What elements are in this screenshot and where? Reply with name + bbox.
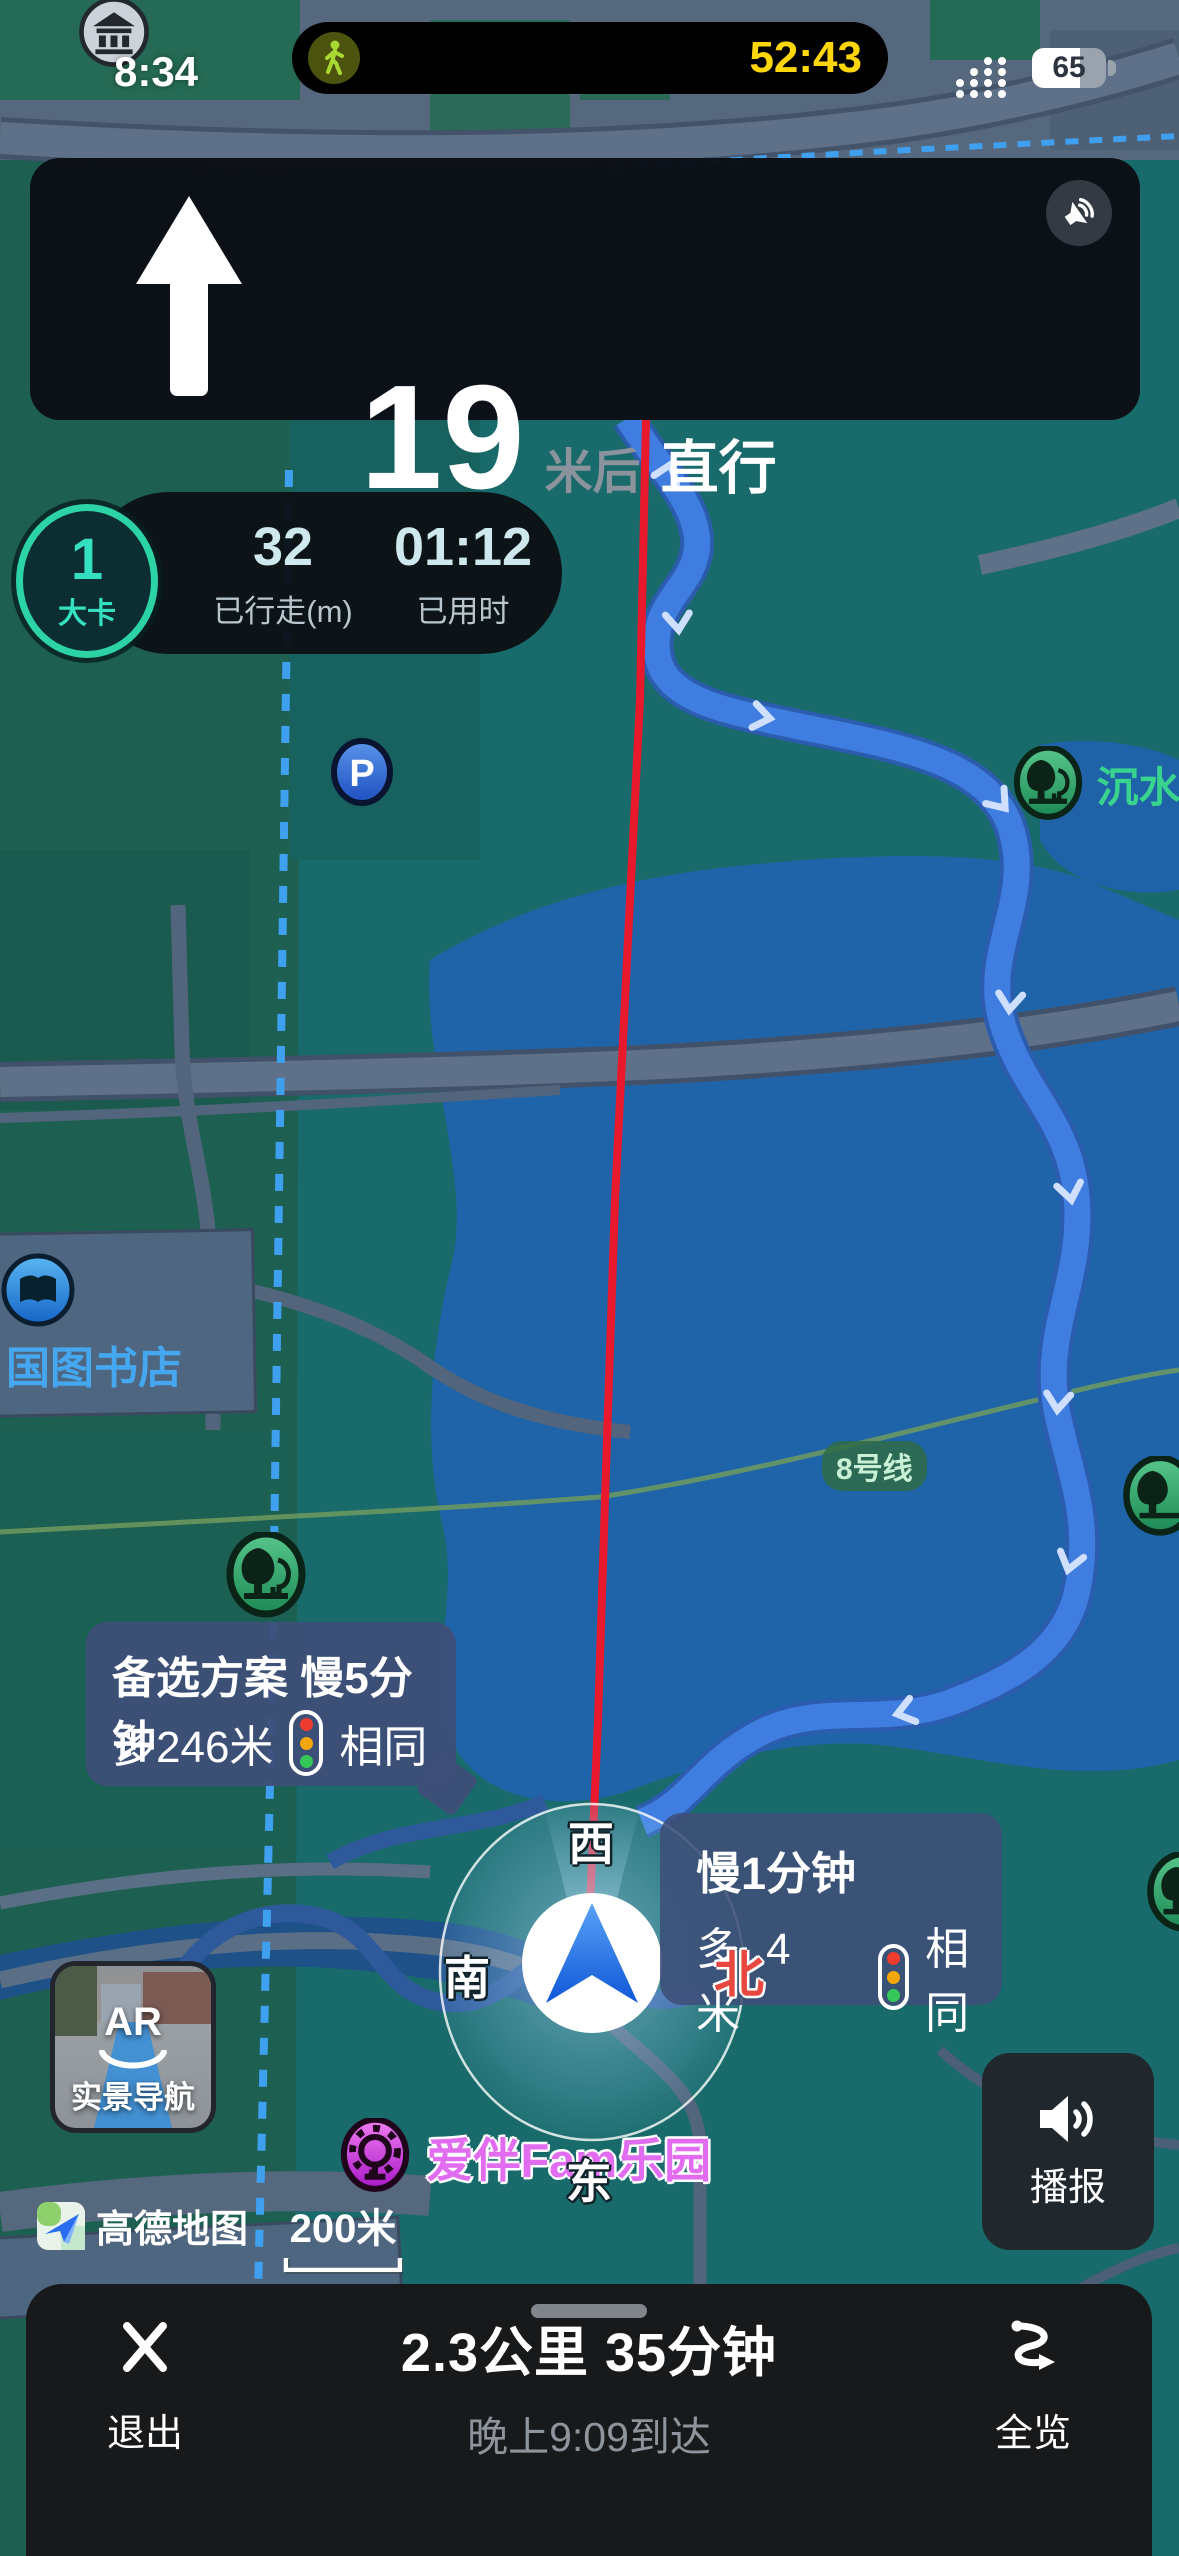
ar-badge: AR — [55, 2000, 211, 2045]
tree-icon[interactable] — [1146, 1852, 1179, 1934]
amap-logo-icon — [36, 2201, 86, 2251]
alt-route-bubble-secondary[interactable]: 慢1分钟 多4米 相同 — [660, 1813, 1002, 2005]
walked-label: 已行走(m) — [213, 586, 352, 631]
svg-text:P: P — [349, 753, 374, 795]
calories-unit: 大卡 — [58, 590, 116, 632]
compass-west: 西 — [568, 1808, 614, 1874]
dynamic-island[interactable]: 52:43 — [292, 22, 888, 94]
ar-label: 实景导航 — [55, 2072, 211, 2117]
walked-value: 32 — [253, 516, 313, 578]
walking-navigation-screen: 西 南 北 东 佳苑 上林世家 西 速滑 刀 家国防科技 业局重大专 工程中心 … — [0, 0, 1179, 2556]
bottom-trip-bar: 退出 2.3公里 35分钟 晚上9:09到达 全览 — [26, 2284, 1152, 2556]
traffic-light-icon — [289, 1710, 323, 1776]
status-time: 8:34 — [96, 48, 216, 96]
poi-guotu-bookstore[interactable]: 国图书店 — [0, 1252, 182, 1414]
calories-badge: 1 大卡 — [16, 504, 158, 658]
elapsed-value: 01:12 — [394, 516, 532, 578]
calories-value: 1 — [71, 530, 103, 591]
trip-stats-pill: 32 已行走(m) 01:12 已用时 — [88, 492, 562, 654]
route-overview-icon — [1003, 2316, 1063, 2376]
broadcast-label: 播报 — [1030, 2156, 1106, 2211]
turn-distance-suffix: 米后 — [545, 432, 641, 502]
battery-indicator: 65 — [1032, 48, 1106, 88]
compass-south: 南 — [444, 1942, 490, 2008]
overview-button[interactable]: 全览 — [958, 2316, 1108, 2457]
mute-voice-button[interactable] — [1046, 180, 1112, 246]
turn-distance-value: 19 — [360, 364, 525, 512]
metro-line8-badge: 8号线 — [822, 1441, 927, 1491]
speaker-icon — [1036, 2092, 1100, 2146]
walking-activity-icon — [308, 32, 360, 84]
tree-icon[interactable] — [226, 1532, 306, 1620]
battery-percent: 65 — [1032, 48, 1106, 88]
alt-route-lights-note: 相同 — [339, 1711, 427, 1775]
turn-instruction-card: 19 米后 直行 — [30, 158, 1140, 420]
speaker-icon — [1054, 188, 1104, 238]
traffic-light-icon — [878, 1944, 909, 2010]
overview-label: 全览 — [958, 2402, 1108, 2457]
battery-nub — [1108, 60, 1116, 76]
parking-icon[interactable]: P — [330, 738, 394, 818]
straight-arrow-icon — [126, 196, 252, 396]
voice-broadcast-button[interactable]: 播报 — [982, 2053, 1154, 2250]
alt-route-extra-distance: 多246米 — [112, 1711, 273, 1775]
tree-icon[interactable] — [1122, 1456, 1179, 1538]
alt-route-lights-note: 相同 — [925, 1913, 1002, 2041]
map-scale-bar: 200米 — [283, 2196, 403, 2274]
alt-route-bubble-main[interactable]: 备选方案 慢5分钟 多246米 相同 — [86, 1622, 456, 1786]
book-icon — [0, 1252, 80, 1332]
amap-watermark: 高德地图 — [36, 2198, 248, 2253]
island-walk-timer: 52:43 — [749, 33, 862, 83]
turn-action: 直行 — [661, 421, 777, 505]
ar-navigation-preview[interactable]: AR 实景导航 — [50, 1961, 216, 2133]
tree-icon — [1012, 746, 1084, 822]
poi-chenshui[interactable]: 沉水廊 — [1012, 746, 1179, 822]
compass-east: 东 — [566, 2146, 612, 2212]
elapsed-label: 已用时 — [417, 586, 510, 631]
cellular-signal-icon — [952, 52, 1022, 98]
compass-north: 北 — [714, 1935, 764, 2007]
